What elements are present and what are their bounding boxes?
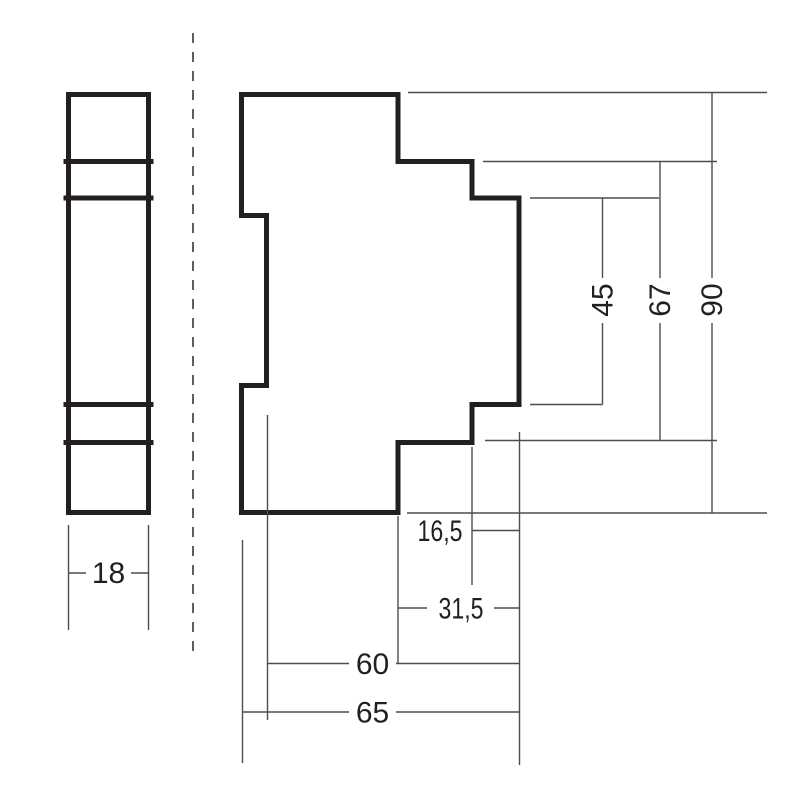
- dimension-label-60: 60: [356, 648, 389, 681]
- dimension-label-45: 45: [587, 283, 620, 316]
- dimension-label-67: 67: [644, 283, 677, 316]
- dimension-label-18: 18: [92, 557, 125, 590]
- dimension-label-16-5: 16,5: [418, 515, 463, 548]
- dimension-label-90: 90: [696, 283, 729, 316]
- dimension-label-31-5: 31,5: [439, 593, 484, 626]
- dimensional-drawing: 18 45 67 90: [0, 0, 800, 800]
- dimension-label-65: 65: [356, 697, 389, 730]
- technical-drawing-canvas: 18 45 67 90: [0, 0, 800, 800]
